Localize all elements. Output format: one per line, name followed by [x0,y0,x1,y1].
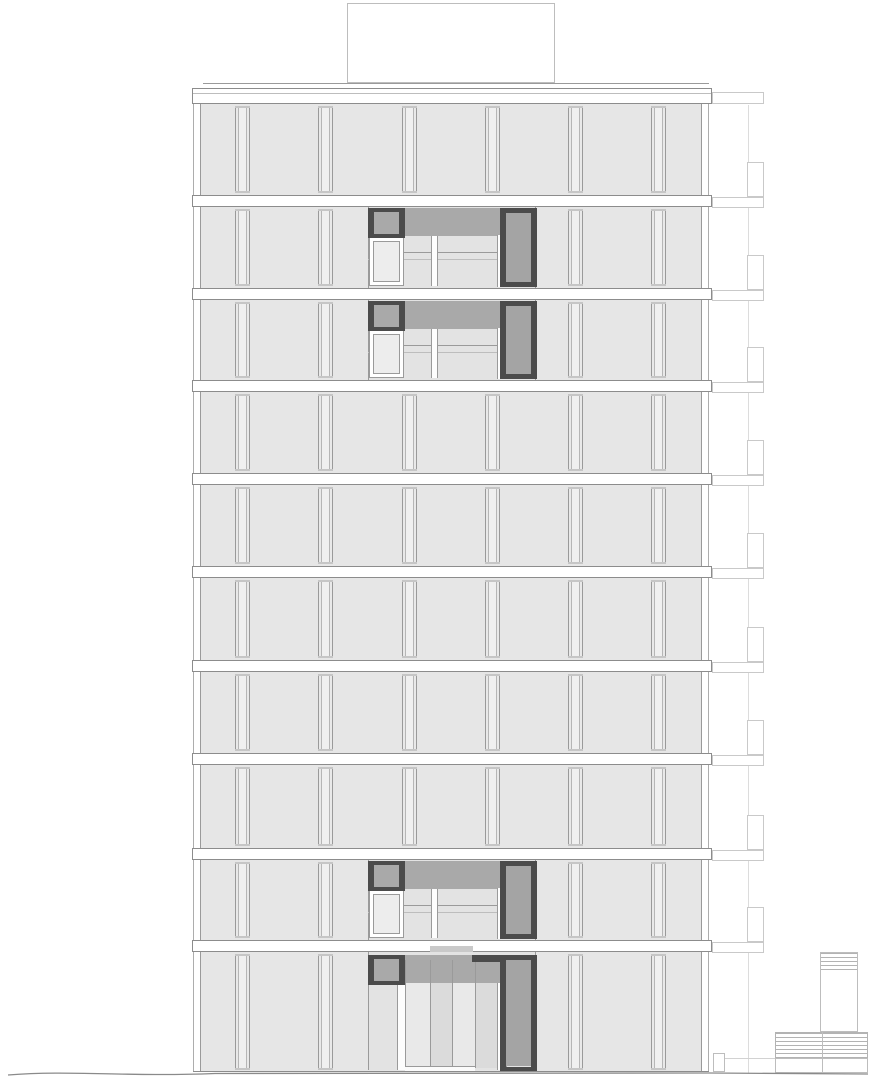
window-mullion-strip [568,487,583,564]
window-mullion-strip [235,106,250,193]
window-mullion-strip [318,302,333,378]
floor-slab-band [192,195,712,207]
window-mullion-strip [651,487,666,564]
door-glazing [431,983,452,1068]
balcony-side-rail [747,440,764,475]
window-mullion-strip [318,394,333,471]
balcony-side-rail [747,533,764,568]
window-mullion-strip [568,106,583,193]
balcony-side-rail [747,907,764,942]
window-mullion-strip [485,394,500,471]
facade-panel-row [200,392,702,473]
floor-slab-band [192,566,712,578]
loggia-mullion [431,236,438,286]
building-base-line [193,1071,709,1072]
window-mullion-strip [235,862,250,938]
window-mullion-strip [318,580,333,658]
window-mullion-strip [651,954,666,1070]
loggia-window-glass [373,334,400,374]
window-mullion-strip [318,674,333,751]
canopy-shadow-patch [430,946,473,952]
window-mullion-strip [402,674,417,751]
floor-slab-band [192,660,712,672]
window-mullion-strip [485,767,500,846]
loggia-column-frame [500,861,537,939]
slab-extension [712,850,764,861]
window-mullion-strip [568,767,583,846]
window-mullion-strip [651,580,666,658]
slab-extension [712,475,764,486]
window-mullion-strip [568,954,583,1070]
rooftop-penthouse [347,3,555,83]
slab-extension [712,662,764,673]
slab-extension [712,755,764,766]
parapet-cap-line [193,93,711,94]
facade-panel-row [200,485,702,566]
entrance-header-bar [472,955,502,962]
balcony-side-rail [747,162,764,197]
window-mullion-strip [318,862,333,938]
door-glazing [406,983,430,1068]
window-mullion-strip [651,209,666,286]
window-mullion-strip [318,106,333,193]
window-mullion-strip [318,767,333,846]
loggia-window-frame [368,301,405,331]
window-mullion-strip [568,862,583,938]
entrance-column-frame [500,955,537,1072]
balcony-side-rail [747,815,764,850]
window-mullion-strip [235,487,250,564]
window-mullion-strip [651,302,666,378]
balcony-side-rail [747,347,764,382]
window-mullion-strip [568,580,583,658]
window-mullion-strip [568,674,583,751]
floor-slab-band [192,753,712,765]
window-mullion-strip [235,674,250,751]
door-glazing [453,983,475,1068]
facade-panel-row [200,578,702,660]
parapet-extension [712,92,764,104]
loggia-column-frame [500,301,537,379]
slab-extension [712,568,764,579]
window-mullion-strip [318,487,333,564]
window-mullion-strip [235,767,250,846]
floor-slab-band [192,380,712,392]
window-mullion-strip [402,394,417,471]
window-mullion-strip [318,954,333,1070]
balcony-side-rail [747,720,764,755]
window-mullion-strip [235,394,250,471]
loggia-window-frame [368,861,405,891]
window-mullion-strip [235,580,250,658]
bollard-post [713,1053,725,1072]
window-mullion-strip [568,394,583,471]
elevation-drawing [0,0,870,1081]
parapet-band [192,88,712,104]
window-mullion-strip [235,302,250,378]
window-mullion-strip [651,767,666,846]
loggia-window-glass [373,241,400,282]
slab-extension [712,942,764,953]
window-mullion-strip [235,209,250,286]
door-frame-strip [397,983,406,1070]
floor-slab-band [192,288,712,300]
loggia-mullion [431,889,438,938]
loggia-column-frame [500,208,537,287]
window-mullion-strip [485,580,500,658]
loggia-window-glass [373,894,400,934]
window-mullion-strip [318,209,333,286]
door-glazing [476,983,497,1068]
floor-slab-band [192,473,712,485]
ground-line [8,1073,868,1075]
window-mullion-strip [402,487,417,564]
window-mullion-strip [235,954,250,1070]
window-mullion-strip [402,767,417,846]
window-mullion-strip [651,106,666,193]
window-mullion-strip [651,674,666,751]
loggia-mullion [431,329,438,378]
slab-extension [712,197,764,208]
floor-slab-band [192,848,712,860]
window-mullion-strip [651,862,666,938]
window-mullion-strip [402,106,417,193]
window-mullion-strip [568,302,583,378]
window-mullion-strip [485,106,500,193]
window-mullion-strip [568,209,583,286]
balcony-side-rail [747,627,764,662]
window-mullion-strip [651,394,666,471]
facade-panel-row [200,672,702,753]
loggia-window-frame [368,208,405,238]
louver-fence-post [822,1032,823,1073]
window-mullion-strip [485,487,500,564]
entrance-frame-left [368,955,405,985]
roof-edge-line [203,83,709,84]
site-step-line [725,1058,775,1059]
slab-extension [712,382,764,393]
window-mullion-strip [402,580,417,658]
facade-panel-row [200,104,702,195]
slab-extension [712,290,764,301]
facade-panel-row [200,765,702,848]
window-mullion-strip [485,674,500,751]
balcony-side-rail [747,255,764,290]
vent-stack-louvers [821,953,857,970]
